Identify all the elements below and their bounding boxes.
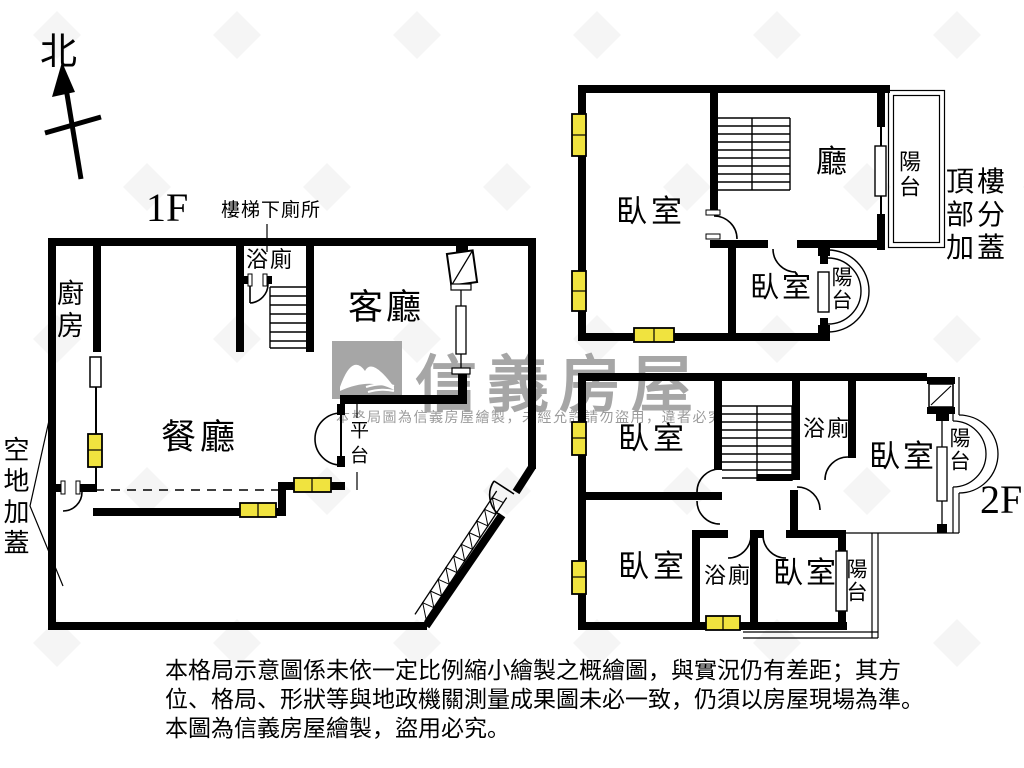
room-label-2f-balcony-top: 陽台 [948, 427, 969, 473]
room-label-dining: 餐廳 [161, 420, 239, 455]
room-label-2f-balcony-bottom: 陽台 [845, 558, 866, 604]
room-label-2f-bedroom-tr: 臥室 [869, 441, 937, 472]
room-label-kitchen: 廚房 [54, 279, 81, 343]
room-label-rooftop-bedroom: 臥室 [616, 196, 686, 227]
room-label-rooftop-bedroom2: 臥室 [750, 274, 814, 303]
room-label-2f-bedroom-bl: 臥室 [618, 551, 688, 582]
floorplan-page: 信義房屋 本格局圖為信義房屋繪製，未經允許請勿盜用，違者必究 [0, 0, 1024, 768]
room-label-rooftop-hall: 廳 [816, 146, 847, 177]
room-label-bath-1f: 浴廁 [246, 249, 294, 271]
room-label-rooftop-balcony: 陽台 [897, 150, 919, 200]
stairs-rooftop [718, 118, 790, 190]
annotation-vacant-covered: 空地加蓋 [1, 436, 27, 560]
disclaimer-text: 本格局示意圖係未依一定比例縮小繪製之概繪圖，與實況仍有差距；其方 位、格局、形狀… [165, 656, 924, 743]
disclaimer-line: 位、格局、形狀等與地政機關測量成果圖未必一致，仍須以房屋現場為準。 [165, 685, 924, 714]
room-label-2f-bedroom-tl: 臥室 [618, 423, 688, 454]
disclaimer-line: 本圖為信義房屋繪製，盜用必究。 [165, 714, 924, 743]
room-label-platform: 平台 [348, 418, 367, 472]
floor2-walls [578, 373, 955, 630]
floor2-title: 2F [980, 480, 1022, 520]
disclaimer-line: 本格局示意圖係未依一定比例縮小繪製之概繪圖，與實況仍有差距；其方 [165, 656, 924, 685]
room-label-2f-bedroom-br: 臥室 [773, 559, 839, 589]
stairs-1f [270, 287, 306, 348]
floor1-title: 1F [146, 188, 188, 228]
room-label-rooftop-balcony2: 陽台 [830, 266, 851, 312]
stair-toilet-note: 樓梯下廁所 [221, 201, 321, 220]
room-label-living: 客廳 [348, 290, 424, 325]
annotation-line: 加蓋 [946, 232, 1008, 265]
annotation-line: 部分 [946, 199, 1008, 232]
floorplan-geometry [0, 0, 1024, 768]
annotation-rooftop-covered: 頂樓 部分 加蓋 [946, 166, 1008, 265]
room-label-2f-bath-top: 浴廁 [803, 418, 851, 440]
annotation-line: 頂樓 [946, 166, 1008, 199]
stairs-2f [722, 406, 792, 481]
outdoor-stairs [415, 491, 507, 621]
room-label-2f-bath-bottom: 浴廁 [704, 565, 752, 587]
north-arrow-icon [45, 62, 101, 179]
north-label: 北 [40, 34, 77, 71]
